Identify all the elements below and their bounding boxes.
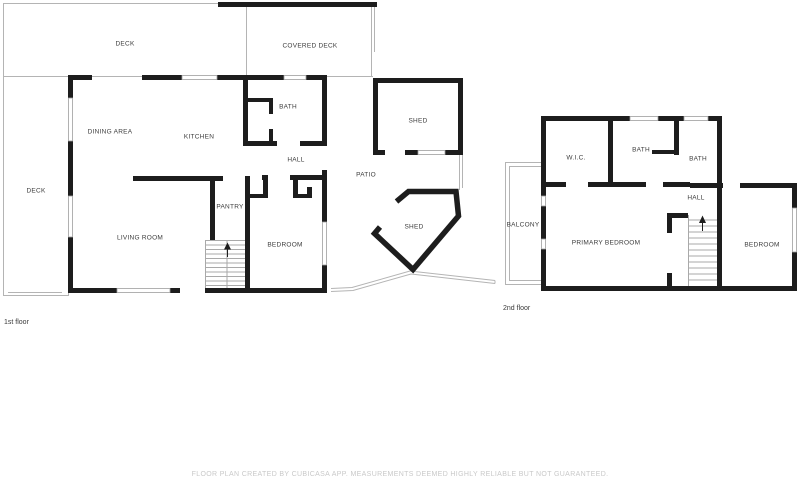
second-floor-caption: 2nd floor [503,305,530,312]
room-label-bedroom-2f: BEDROOM [744,242,779,249]
room-label-dining-area: DINING AREA [88,129,133,136]
first-floor-stairs [206,241,247,290]
room-label-bath-1f: BATH [279,104,297,111]
room-label-balcony: BALCONY [507,222,540,229]
second-floor-plan [505,116,797,291]
second-floor-stairs [689,215,718,286]
room-label-bedroom-1f: BEDROOM [267,242,302,249]
second-floor-outer-walls [541,116,797,291]
room-label-kitchen: KITCHEN [184,134,214,141]
room-label-deck-left: DECK [26,188,45,195]
room-label-bath-middle: BATH [632,147,650,154]
room-label-shed-lower: SHED [404,224,423,231]
room-label-primary-bedroom: PRIMARY BEDROOM [572,240,641,247]
room-label-wic: W.I.C. [566,155,585,162]
room-label-living-room: LIVING ROOM [117,235,163,242]
room-label-bath-right: BATH [689,156,707,163]
covered-deck-outline [372,7,375,76]
room-label-hall-1f: HALL [287,157,304,164]
floor-plan-page: DECK COVERED DECK DECK DINING AREA KITCH… [0,0,800,485]
room-label-shed-upper: SHED [408,118,427,125]
footer-disclaimer: FLOOR PLAN CREATED BY CUBICASA APP. MEAS… [0,471,800,478]
floor-plan-canvas [0,0,800,485]
stairs-up-arrow-icon [699,216,706,232]
patio-outline [327,77,463,191]
shed-lower-walls [375,192,459,270]
first-floor-caption: 1st floor [4,319,29,326]
shed-upper-walls [373,78,463,155]
walkway-path [331,271,495,292]
room-label-deck-top: DECK [115,41,134,48]
room-label-patio: PATIO [356,172,376,179]
first-floor-plan [3,2,495,296]
room-label-pantry: PANTRY [216,204,243,211]
room-label-hall-2f: HALL [687,195,704,202]
room-label-covered-deck: COVERED DECK [282,43,337,50]
